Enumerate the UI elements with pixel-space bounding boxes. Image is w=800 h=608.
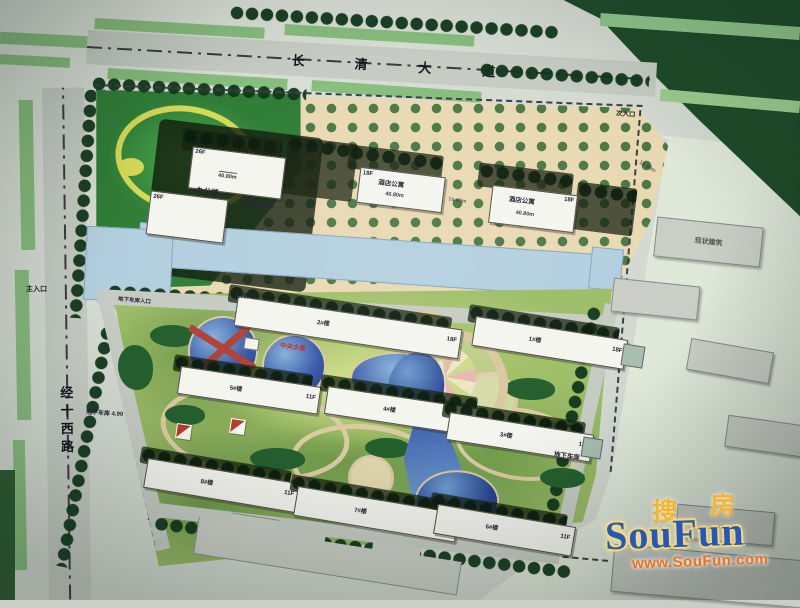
dimension-label: 40.80m [515,210,534,218]
photo-edge-dark [0,470,15,600]
hotel-label: 酒店公寓 [508,193,535,206]
red-pavilion [175,423,192,440]
building-floors: 18F [446,337,457,344]
red-pavilion [229,418,246,435]
building-name: 2#楼 [316,317,330,328]
tree-cluster [118,345,153,390]
building-name: 8#楼 [200,476,214,487]
label-existing-building: 现状建筑 [694,236,723,249]
building-name: 7#楼 [353,505,367,516]
building-name: 5#楼 [229,382,243,393]
small-pavilion [243,337,260,351]
building-1-tower [620,343,645,368]
building-office-tower-b: 26F [146,190,229,243]
green-strip [13,440,27,570]
label-secondary-entrance: 次入口 [616,107,636,118]
garden-lawn-blob [118,158,144,176]
road-name-char: 长 [291,50,305,70]
dimension-label: 40.80m [385,192,404,200]
dimension-label: 40.80m [218,171,237,181]
hotel-label: 酒店公寓 [378,176,405,189]
building-name: 6#楼 [485,522,499,533]
building-name: 3#楼 [499,429,513,440]
label-pedestrian-entrance: 人行入口 [234,289,261,301]
road-name-char: 大 [418,57,432,77]
green-strip [19,100,36,250]
building-3-tower [581,437,604,460]
watermark-url: www.SouFun.com [632,552,769,572]
floors-label: 26F [153,194,164,201]
building-floors: 11F [305,394,316,401]
road-name-char: 清 [354,53,368,73]
tree-shadow [282,136,359,202]
tree-cluster [505,378,555,400]
road-name-west: 经十西路 [56,386,76,458]
floors-label: 26F [195,149,206,156]
floors-label: 18F [564,197,575,204]
building-floors: 18F [612,347,623,355]
tree-cluster [540,468,585,488]
floors-label: 18F [362,170,373,177]
tree-cluster [165,405,205,425]
tree-shadow [572,182,637,237]
watermark-brand: SouFun [604,512,745,557]
site-plan-photo: { "roads": { "north_chars": ["长", "清", "… [0,0,800,600]
watermark: 搜 房 SouFun www.SouFun.com [600,488,800,578]
building-name: 4#楼 [383,403,397,414]
building-floors: 11F [560,534,571,542]
building-name: 1#楼 [528,334,542,345]
label-garage-left: 地下车库 4.90 [86,407,124,418]
tree-cluster [365,438,410,458]
label-main-entrance: 主入口 [26,284,47,294]
